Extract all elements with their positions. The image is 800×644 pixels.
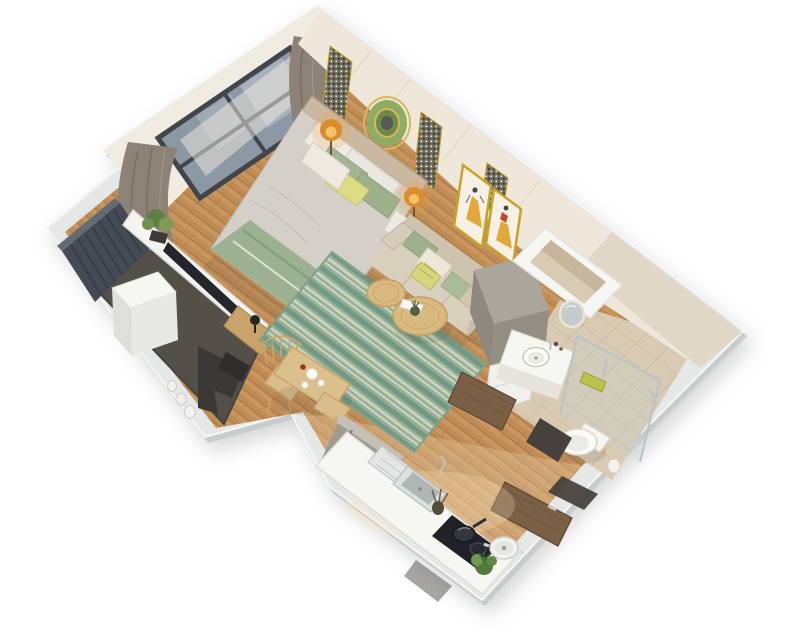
floor-plan-render bbox=[0, 0, 800, 644]
pan-on-hob bbox=[453, 526, 475, 542]
teapot bbox=[307, 369, 318, 380]
round-mirror bbox=[560, 301, 584, 327]
teacup bbox=[302, 382, 308, 388]
floor-plan-stage bbox=[0, 0, 800, 644]
black-table-lamp bbox=[250, 315, 260, 325]
sink-drain bbox=[418, 487, 422, 491]
lamp-bright-core bbox=[409, 194, 419, 204]
washing-machine bbox=[112, 272, 178, 356]
teacup bbox=[318, 380, 324, 386]
toiletry-bottle bbox=[554, 342, 558, 346]
waste-bin bbox=[608, 459, 620, 473]
art-figure-head bbox=[504, 206, 509, 211]
art-figure-head bbox=[472, 187, 477, 192]
red-jar bbox=[300, 364, 306, 370]
pot-handle bbox=[484, 544, 489, 546]
coffee-table-small bbox=[367, 280, 405, 307]
pot-knob bbox=[502, 546, 506, 550]
lamp-bright-core bbox=[326, 127, 337, 138]
basin-drain bbox=[535, 357, 538, 360]
mirror-center bbox=[381, 116, 393, 130]
toiletry-bottle bbox=[559, 347, 563, 351]
pot-handle bbox=[519, 551, 524, 553]
